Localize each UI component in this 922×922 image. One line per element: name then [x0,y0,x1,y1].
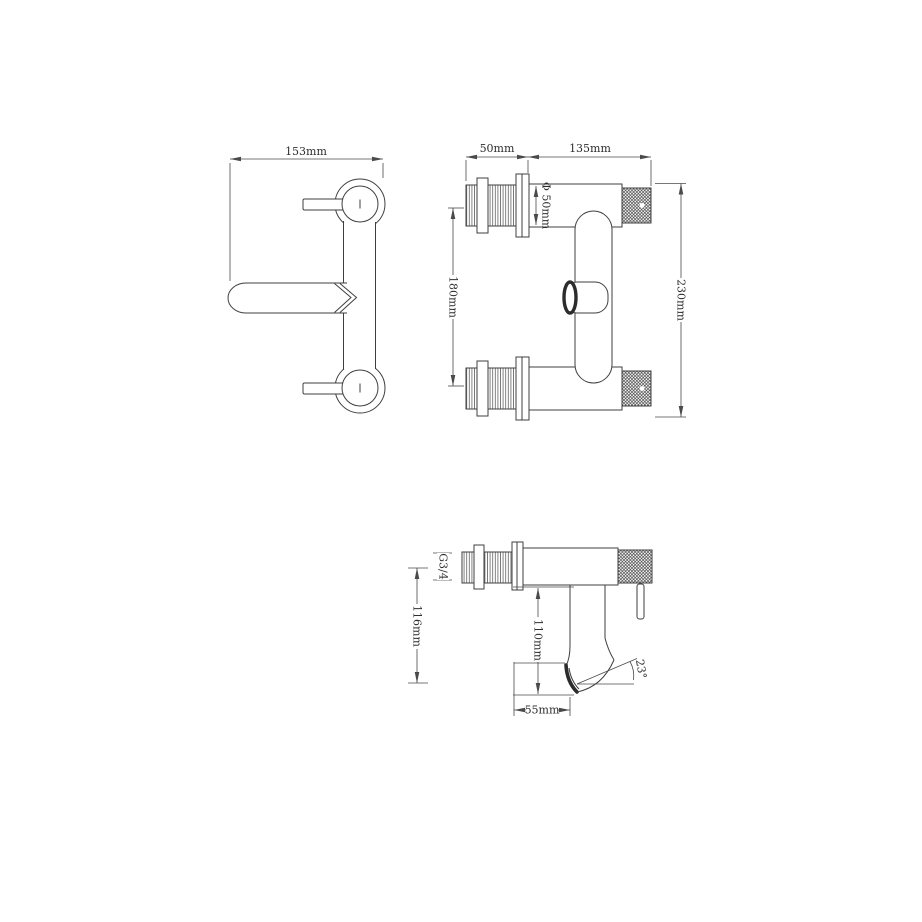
profile-view: 23° G3/4 116mm 110mm [408,542,652,717]
profile-valve-body [523,548,618,585]
profile-threaded-shank [462,542,523,590]
dim-profile-height: 116mm [408,568,428,683]
profile-spout [566,585,614,692]
dim-label-spout-angle: 23° [633,658,649,679]
spout-front [228,283,357,313]
bottom-lever [303,383,348,394]
dim-spout-drop: 110mm [513,587,574,695]
dim-label-height: 116mm [411,605,424,647]
dim-side-spacing: 180mm [447,208,465,386]
dim-label-drop: 110mm [532,619,545,661]
dim-label-shank-offset: 50mm [480,142,515,155]
dim-label-shank-spacing: 180mm [447,276,460,318]
profile-locknut [474,545,484,589]
dim-label-diameter: Φ 50mm [540,182,553,230]
top-handle-dot [640,203,645,208]
bottom-threaded-shank [466,357,529,420]
dim-label-body-length: 135mm [569,142,611,155]
profile-lever [637,584,644,619]
top-threaded-shank [466,174,529,237]
top-lever [303,199,348,210]
bottom-knurled-handle [622,371,651,406]
spout-outlet-side [564,282,608,313]
faucet-dimension-diagram: 153mm [0,0,922,922]
front-view: 153mm [228,145,385,413]
dim-side-top: 50mm 135mm [466,142,651,186]
bottom-locknut [477,361,488,416]
dim-label-overall-height: 230mm [675,279,688,321]
side-view: 50mm 135mm Φ 50mm 180mm 230mm [447,142,688,420]
top-locknut [477,178,488,233]
dim-thread-size: G3/4 [433,553,452,580]
bottom-handle-dot [640,386,645,391]
dim-label-thread: G3/4 [437,553,450,580]
profile-knurled-handle [618,550,652,583]
technical-drawing-canvas: 153mm [0,0,922,922]
dim-spout-reach: 55mm [514,662,570,717]
dim-side-height: 230mm [655,184,688,418]
dim-label-front-width: 153mm [285,145,327,158]
dim-label-reach: 55mm [525,704,560,717]
top-knurled-handle [622,188,651,223]
